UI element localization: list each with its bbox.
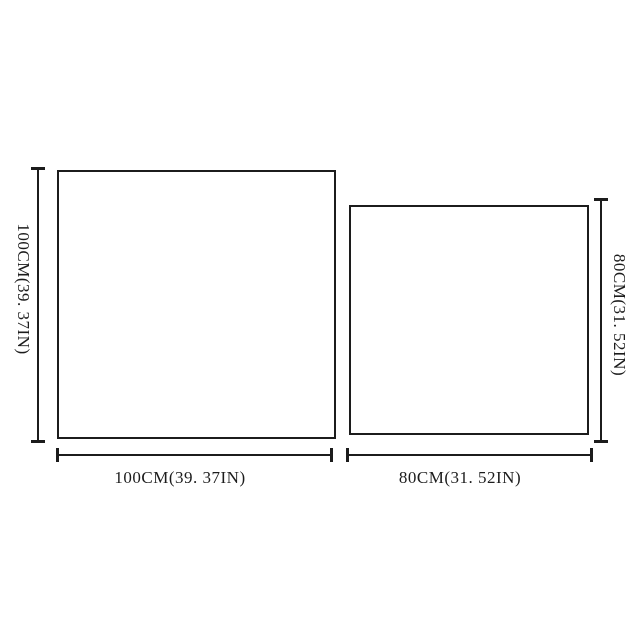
right-width-dimension-right-tick	[590, 448, 593, 462]
right-height-dimension-top-cap	[594, 198, 608, 201]
left-height-dimension-bottom-cap	[31, 440, 45, 443]
left-panel-outline	[57, 170, 336, 439]
right-panel-width-label: 80CM(31. 52IN)	[399, 468, 521, 488]
right-height-dimension-bottom-cap	[594, 440, 608, 443]
right-width-dimension-left-tick	[346, 448, 349, 462]
left-width-dimension-line	[57, 454, 333, 456]
left-width-dimension-right-tick	[330, 448, 333, 462]
left-panel-width-label: 100CM(39. 37IN)	[114, 468, 245, 488]
left-width-dimension-left-tick	[56, 448, 59, 462]
left-height-dimension-top-cap	[31, 167, 45, 170]
right-panel-outline	[349, 205, 589, 435]
left-height-dimension-line	[37, 168, 39, 442]
size-chart-diagram: 100CM(39. 37IN) 80CM(31. 52IN) 100CM(39.…	[0, 0, 640, 640]
right-height-dimension-line	[600, 199, 602, 442]
right-width-dimension-line	[347, 454, 592, 456]
right-panel-height-label: 80CM(31. 52IN)	[609, 254, 629, 376]
left-panel-height-label: 100CM(39. 37IN)	[13, 223, 33, 354]
